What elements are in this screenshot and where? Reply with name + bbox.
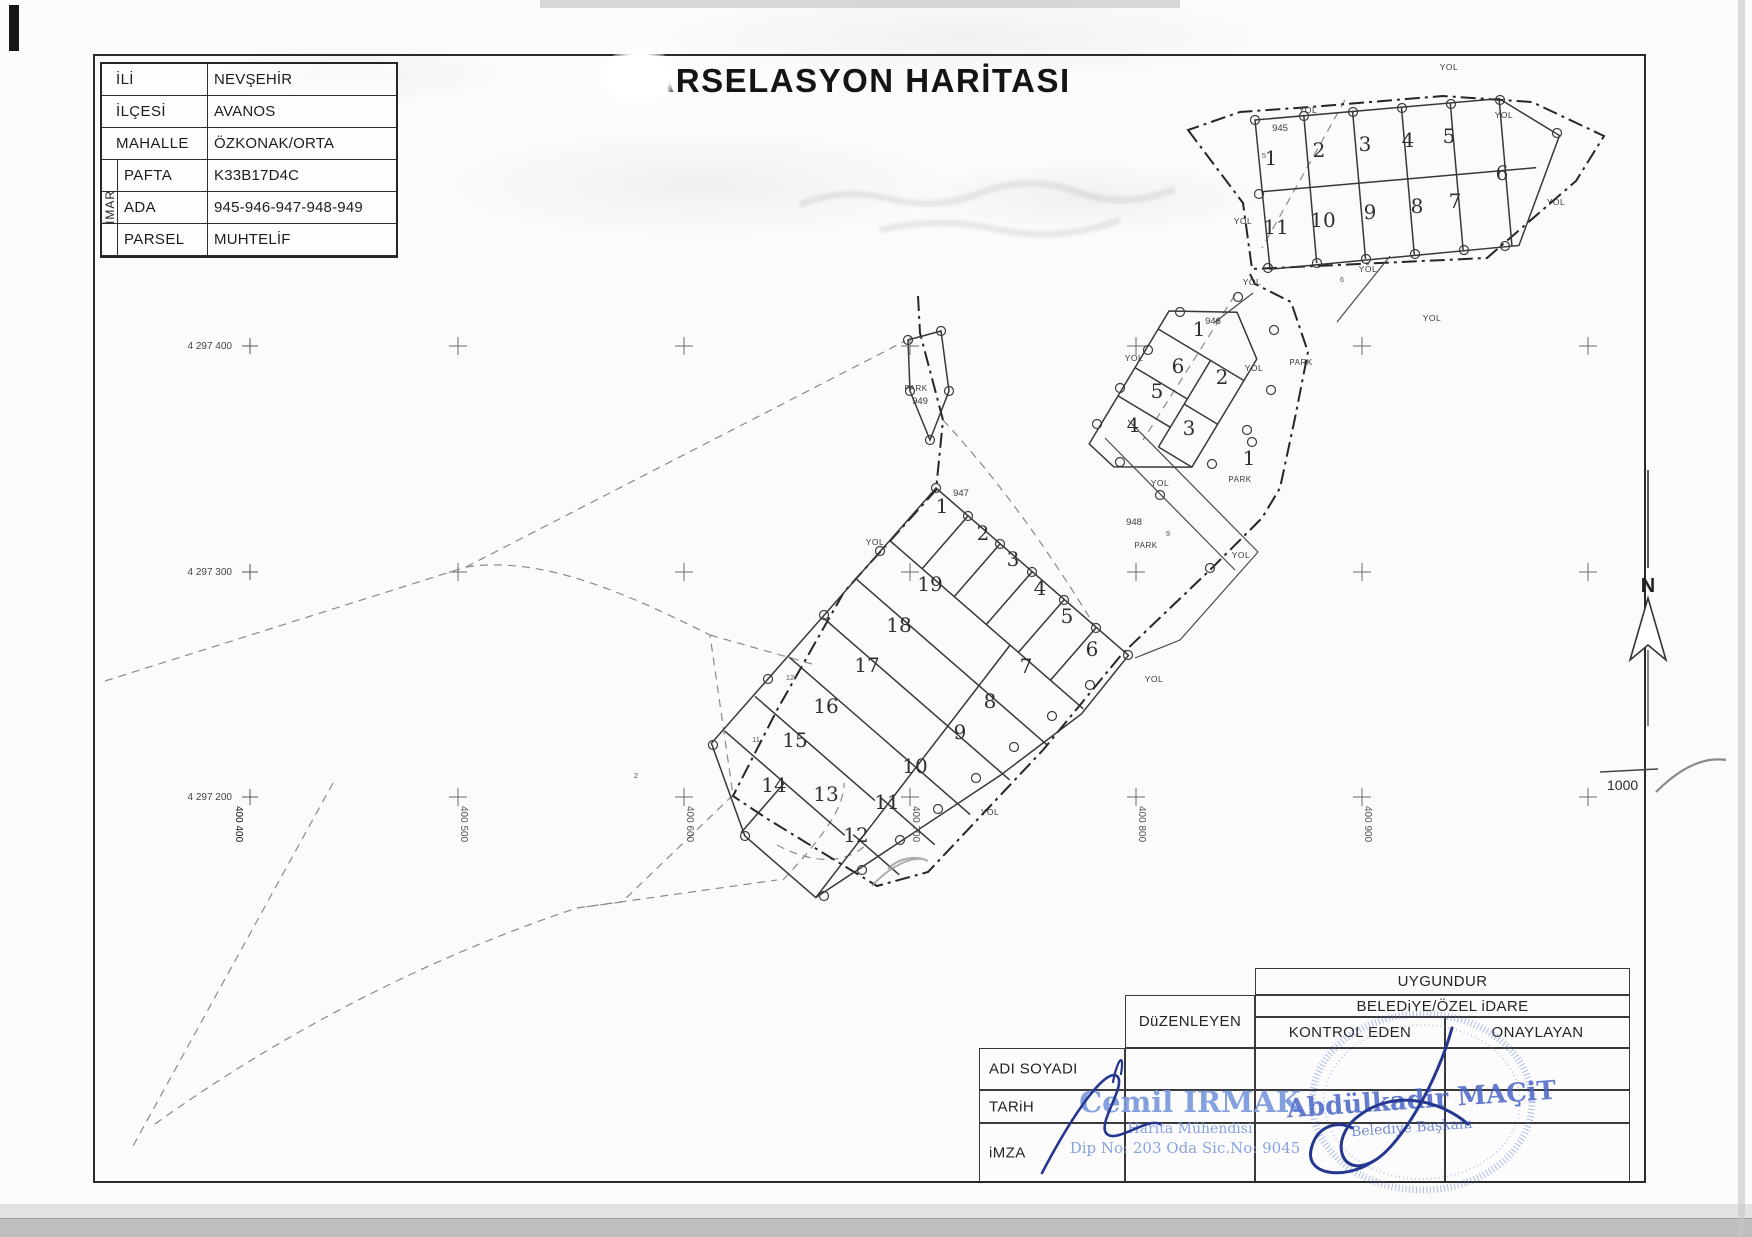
- northing-label: 4 297 300: [188, 567, 233, 578]
- cell-duzenleyen-adi: [1125, 1048, 1255, 1090]
- ada-label: 949: [912, 396, 928, 407]
- map-labels-layer: 1234567891011123456123456789101112131415…: [634, 62, 1565, 847]
- ada-label: 947: [953, 488, 969, 499]
- road-label: YOL: [1440, 62, 1459, 72]
- north-label: N: [1641, 575, 1655, 597]
- survey-point: [1156, 491, 1165, 500]
- info-row-parsel: PARSEL MUHTELİF: [102, 224, 396, 256]
- duzenleyen-label: DüZENLEYEN: [1126, 996, 1254, 1047]
- survey-point: [972, 774, 981, 783]
- survey-point: [1086, 681, 1095, 690]
- survey-point: [1398, 104, 1407, 113]
- onaylayan-label: ONAYLAYAN: [1446, 1018, 1629, 1047]
- survey-point: [1255, 190, 1264, 199]
- cell-belediye: BELEDiYE/ÖZEL iDARE: [1255, 995, 1630, 1017]
- survey-point: [1251, 116, 1260, 125]
- survey-point: [1010, 743, 1019, 752]
- scan-artifact-right: [1738, 0, 1745, 1236]
- parcel-number: 9: [1364, 200, 1377, 224]
- tiny-annotation: 11: [752, 735, 760, 744]
- parcel-number: 2: [1313, 138, 1326, 162]
- parcel-number: 18: [886, 613, 911, 637]
- pencil-ghost-marks: [800, 183, 1175, 234]
- parcel-number: 5: [1061, 604, 1074, 628]
- parcel-number: 8: [984, 689, 997, 713]
- survey-point: [1176, 308, 1185, 317]
- grid-cross: [449, 788, 467, 806]
- survey-point: [1313, 259, 1322, 268]
- parcel-number: 5: [1443, 124, 1456, 148]
- info-label: MAHALLE: [116, 135, 189, 152]
- imar-vertical-label: İMAR: [103, 169, 117, 245]
- road-label: YOL: [1359, 264, 1378, 274]
- easting-label: 400 800: [1136, 806, 1147, 843]
- info-value: K33B17D4C: [214, 167, 299, 184]
- cell-kontrol-imza: [1255, 1123, 1445, 1182]
- road-label: YOL: [1243, 277, 1262, 287]
- belediye-label: BELEDiYE/ÖZEL iDARE: [1256, 996, 1629, 1016]
- cell-kontrol-tarih: [1255, 1090, 1445, 1123]
- cell-kontrol-eden: KONTROL EDEN: [1255, 1017, 1445, 1048]
- grid-cross: [1353, 563, 1371, 581]
- uygundur-label: UYGUNDUR: [1256, 969, 1629, 994]
- ada-946-block: [1086, 282, 1273, 502]
- ada-947-block: [680, 487, 1131, 950]
- parcel-number: 1: [1243, 446, 1256, 470]
- survey-point: [926, 436, 935, 445]
- survey-point: [709, 741, 718, 750]
- road-label: YOL: [1495, 110, 1514, 120]
- survey-point: [1264, 264, 1273, 273]
- road-label: YOL: [1232, 550, 1251, 560]
- parcel-number: 9: [954, 720, 967, 744]
- parcel-number: 2: [1216, 365, 1229, 389]
- adi-soyadi-label: ADI SOYADI: [989, 1061, 1078, 1078]
- survey-point: [1270, 326, 1279, 335]
- cell-imza: iMZA: [979, 1123, 1125, 1182]
- grid-cross: [449, 563, 467, 581]
- road-label: YOL: [1245, 363, 1264, 373]
- imar-boundary-dashdot: [733, 96, 1604, 886]
- road-label: YOL: [1423, 313, 1442, 323]
- grid-cross: [449, 337, 467, 355]
- ada-949-block: [908, 331, 949, 440]
- north-arrow: N: [1630, 470, 1666, 726]
- grid-cross: [1127, 337, 1145, 355]
- survey-point: [820, 892, 829, 901]
- survey-point: [932, 484, 941, 493]
- survey-point: [937, 327, 946, 336]
- imza-label: iMZA: [989, 1144, 1026, 1161]
- grid-cross: [1579, 563, 1597, 581]
- survey-point: [1048, 712, 1057, 721]
- parcel-number: 3: [1183, 416, 1196, 440]
- parcel-number: 19: [917, 572, 942, 596]
- grid-cross: [242, 338, 258, 354]
- scan-artifact-bottom-light: [0, 1204, 1752, 1218]
- grid-cross: [675, 563, 693, 581]
- survey-point: [1496, 96, 1505, 105]
- road-edges: [1105, 256, 1390, 658]
- info-value: AVANOS: [214, 103, 276, 120]
- parcel-number: 11: [874, 790, 899, 814]
- imar-strip: İMAR: [102, 160, 118, 256]
- survey-points-layer: [709, 96, 1562, 901]
- parcel-number: 16: [813, 694, 838, 718]
- pencil-swoosh: [1656, 759, 1726, 792]
- info-value: MUHTELİF: [214, 231, 291, 248]
- easting-label: 400 600: [684, 806, 695, 843]
- cell-tarih: TARiH: [979, 1090, 1125, 1123]
- cell-adi-soyadi: ADI SOYADI: [979, 1048, 1125, 1090]
- survey-point: [934, 805, 943, 814]
- parcel-number: 10: [902, 754, 927, 778]
- parcel-number: 3: [1007, 547, 1020, 571]
- northing-label: 4 297 200: [188, 792, 233, 803]
- cell-onaylayan-tarih: [1445, 1090, 1630, 1123]
- easting-label: 400 500: [458, 806, 469, 843]
- road-label: YOL: [1234, 216, 1253, 226]
- grid-cross: [901, 563, 919, 581]
- road-label: YOL: [1299, 105, 1318, 115]
- info-value: NEVŞEHİR: [214, 71, 292, 88]
- tarih-label: TARiH: [989, 1098, 1034, 1115]
- survey-point: [964, 512, 973, 521]
- correction-blob: [600, 48, 678, 106]
- survey-point: [858, 866, 867, 875]
- kontrol-eden-label: KONTROL EDEN: [1256, 1018, 1444, 1047]
- parcel-number: 2: [977, 521, 990, 545]
- scale-mark: 1000: [1600, 759, 1726, 793]
- parcel-number: 1: [936, 494, 949, 518]
- park-label: PARK: [1289, 358, 1312, 367]
- cell-onaylayan: ONAYLAYAN: [1445, 1017, 1630, 1048]
- parcel-number: 17: [854, 653, 879, 677]
- survey-point: [741, 832, 750, 841]
- cell-kontrol-adi: [1255, 1048, 1445, 1090]
- cell-onaylayan-adi: [1445, 1048, 1630, 1090]
- park-label: PARK: [1228, 475, 1251, 484]
- park-label: PARK: [904, 384, 927, 393]
- imar-info-table: İLİ NEVŞEHİR İLÇESİ AVANOS MAHALLE ÖZKON…: [100, 62, 398, 258]
- cell-uygundur: UYGUNDUR: [1255, 968, 1630, 995]
- ada-label: 945: [1272, 123, 1288, 134]
- survey-point: [945, 387, 954, 396]
- parcel-number: 6: [1496, 161, 1509, 185]
- road-label: YOL: [1125, 353, 1144, 363]
- info-label: PARSEL: [124, 231, 184, 248]
- grid-cross: [675, 337, 693, 355]
- survey-point: [876, 547, 885, 556]
- survey-point: [1028, 568, 1037, 577]
- survey-point: [1349, 108, 1358, 117]
- tiny-annotation: 12: [786, 673, 794, 682]
- tiny-annotation: 5: [1262, 151, 1266, 160]
- info-table-divider: [207, 64, 208, 256]
- info-row-pafta: PAFTA K33B17D4C: [102, 160, 396, 192]
- info-label: İLÇESİ: [116, 103, 166, 120]
- survey-point: [1267, 386, 1276, 395]
- grid-cross: [242, 564, 258, 580]
- survey-point: [1116, 458, 1125, 467]
- parcel-number: 4: [1034, 576, 1047, 600]
- info-row-mahalle: MAHALLE ÖZKONAK/ORTA: [102, 128, 396, 160]
- easting-label: 400 900: [1362, 806, 1373, 843]
- parcel-number: 1: [1193, 317, 1206, 341]
- survey-point: [906, 387, 915, 396]
- info-row-ilcesi: İLÇESİ AVANOS: [102, 96, 396, 128]
- road-label: YOL: [1151, 478, 1170, 488]
- survey-point: [764, 675, 773, 684]
- info-label: İLİ: [116, 71, 134, 88]
- scan-artifact-bottom-band: [0, 1218, 1752, 1237]
- parcel-number: 5: [1151, 379, 1164, 403]
- parcel-number: 6: [1172, 354, 1185, 378]
- scan-artifact-bar: [9, 5, 19, 51]
- tiny-annotation: 2: [634, 771, 638, 780]
- survey-point: [1411, 250, 1420, 259]
- ada-label: 946: [1205, 316, 1221, 327]
- scan-artifact-top: [540, 0, 1180, 8]
- info-row-ili: İLİ NEVŞEHİR: [102, 64, 396, 96]
- cell-duzenleyen: DüZENLEYEN: [1125, 995, 1255, 1048]
- parcel-number: 15: [782, 728, 807, 752]
- parcel-number: 1: [1265, 146, 1278, 170]
- grid-cross: [1353, 788, 1371, 806]
- parcel-number: 14: [761, 773, 786, 797]
- parcel-number: 7: [1020, 654, 1033, 678]
- parcel-number: 3: [1359, 132, 1372, 156]
- survey-point: [1093, 420, 1102, 429]
- park-label: PARK: [1134, 541, 1157, 550]
- grid-cross: [901, 337, 919, 355]
- survey-point: [896, 836, 905, 845]
- easting-label: 400 400: [233, 806, 244, 843]
- grid-cross: [242, 789, 258, 805]
- survey-point: [1092, 624, 1101, 633]
- cell-onaylayan-imza: [1445, 1123, 1630, 1182]
- survey-point: [1124, 651, 1133, 660]
- easting-label: 400 700: [910, 806, 921, 843]
- info-value: ÖZKONAK/ORTA: [214, 135, 334, 152]
- survey-point: [1248, 438, 1257, 447]
- parcel-number: 4: [1127, 413, 1140, 437]
- pencil-curl: [872, 858, 928, 886]
- parcel-number: 4: [1402, 128, 1415, 152]
- grid-layer: 4 297 4004 297 3004 297 200400 400400 50…: [188, 337, 1598, 843]
- survey-point: [1234, 293, 1243, 302]
- road-label: YOL: [1547, 197, 1566, 207]
- survey-point: [1501, 242, 1510, 251]
- ada-label: 948: [1126, 517, 1142, 528]
- survey-point: [1208, 460, 1217, 469]
- survey-point: [1116, 384, 1125, 393]
- road-label: YOL: [1145, 674, 1164, 684]
- info-row-ada: ADA 945-946-947-948-949: [102, 192, 396, 224]
- parcel-number: 10: [1310, 208, 1335, 232]
- survey-point: [1300, 112, 1309, 121]
- survey-point: [996, 540, 1005, 549]
- survey-point: [1243, 426, 1252, 435]
- info-label: ADA: [124, 199, 156, 216]
- tiny-annotation: 9: [1166, 529, 1170, 538]
- survey-point: [1206, 564, 1215, 573]
- survey-point: [1447, 100, 1456, 109]
- survey-point: [1553, 129, 1562, 138]
- scale-value: 1000: [1607, 777, 1638, 793]
- grid-cross: [1579, 788, 1597, 806]
- parcel-number: 8: [1411, 194, 1424, 218]
- cell-duzenleyen-tarih: [1125, 1090, 1255, 1123]
- tiny-annotation: 6: [1340, 275, 1344, 284]
- info-value: 945-946-947-948-949: [214, 199, 363, 216]
- road-label: YOL: [981, 807, 1000, 817]
- grid-cross: [901, 788, 919, 806]
- grid-cross: [1579, 337, 1597, 355]
- survey-point: [1362, 255, 1371, 264]
- survey-point: [1060, 596, 1069, 605]
- survey-point: [1460, 246, 1469, 255]
- survey-point: [1144, 346, 1153, 355]
- northing-label: 4 297 400: [188, 341, 233, 352]
- survey-point: [820, 611, 829, 620]
- ada-945-block: [1255, 94, 1569, 270]
- parcel-number: 7: [1449, 189, 1462, 213]
- grid-cross: [1127, 563, 1145, 581]
- parcel-number: 12: [843, 823, 868, 847]
- grid-cross: [1127, 788, 1145, 806]
- parcel-number: 11: [1263, 215, 1288, 239]
- cell-duzenleyen-imza: [1125, 1123, 1255, 1182]
- info-label: PAFTA: [124, 167, 172, 184]
- parcel-number: 13: [813, 782, 838, 806]
- survey-point: [904, 336, 913, 345]
- road-label: YOL: [866, 537, 885, 547]
- parcel-number: 6: [1086, 637, 1099, 661]
- grid-cross: [1353, 337, 1371, 355]
- grid-cross: [675, 788, 693, 806]
